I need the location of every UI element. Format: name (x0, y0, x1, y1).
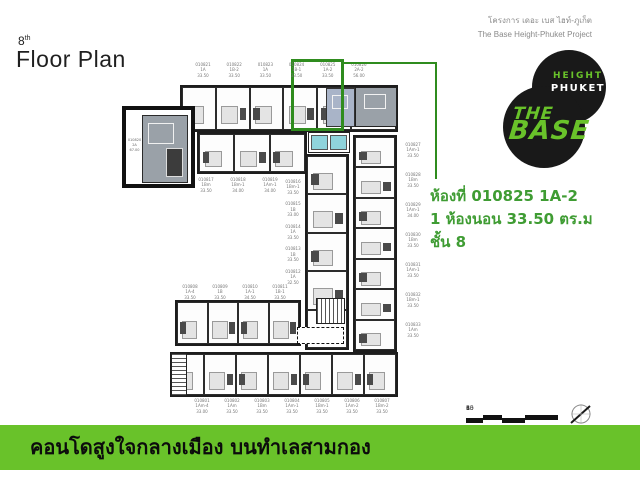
unit-cell (364, 354, 396, 395)
unit-label: 0108061Am-233.50 (338, 398, 366, 414)
unit-label: 0108181Bm-134.00 (224, 177, 252, 193)
unit-label: 0108231A33.50 (251, 62, 279, 78)
wing-bottom-upper-row (175, 300, 301, 346)
floor-number-suffix: th (25, 35, 31, 42)
unit-label: 0108121A32.50 (279, 269, 307, 285)
wing-right-column (353, 135, 397, 352)
unit-label: 0108281Bm33.50 (399, 172, 427, 188)
unit-label: 0108211A33.50 (189, 62, 217, 78)
unit-cell (355, 289, 395, 319)
unit-cell (216, 87, 250, 130)
stairwell (316, 298, 345, 324)
unit-label: 0108111B-133.50 (266, 284, 294, 300)
unit-cell (355, 228, 395, 258)
callout-line-vertical (435, 62, 437, 179)
logo-base-label: BASE (508, 118, 591, 144)
unit-cell (300, 354, 332, 395)
unit-callout-text: ห้องที่ 010825 1A-2 1 ห้องนอน 33.50 ตร.ม… (430, 185, 593, 254)
compass-icon (566, 400, 594, 428)
logo-height-label: HEIGHT (548, 71, 608, 81)
scale-bar-segment (502, 420, 525, 424)
elevator-core (308, 132, 350, 153)
labels-top-row: 0108211A33.50 0108221B-233.50 0108231A33… (189, 62, 373, 78)
unit-label: 0108241B-133.50 (283, 62, 311, 78)
project-name-english: The Base Height-Phuket Project (478, 30, 592, 39)
callout-floor-line: ชั้น 8 (430, 231, 593, 254)
dashed-service-room (297, 327, 344, 344)
project-name-thai: โครงการ เดอะ เบส ไฮท์-ภูเก็ต (488, 14, 592, 27)
unit-label: 0108161Bm-133.50 (279, 179, 307, 195)
elevator-cell (330, 135, 347, 150)
unit-cell (269, 302, 300, 344)
unit-label: 0108141A33.50 (279, 224, 307, 240)
logo-phuket-label: PHUKET (544, 83, 612, 94)
unit-cell (355, 198, 395, 228)
unit-cell (307, 233, 347, 271)
unit-label: 0108051Bm-133.50 (308, 398, 336, 414)
callout-bedroom-line: 1 ห้องนอน 33.50 ตร.ม (430, 208, 593, 231)
unit-cell (250, 87, 284, 130)
unit-label: 0108101A-134.50 (236, 284, 264, 300)
labels-second-row: 0108171Bm33.50 0108181Bm-134.00 0108191A… (192, 177, 284, 193)
unit-label: 0108311Am-133.50 (399, 262, 427, 278)
unit-label: 0108011Am-433.00 (188, 398, 216, 414)
elevator-cell (311, 135, 328, 150)
scale-bar-segment (483, 415, 502, 419)
unit-detail-box: 010820 2A 67.00 (122, 106, 195, 188)
unit-cell (332, 354, 364, 395)
scale-bar-segment (466, 420, 483, 424)
unit-cell (238, 302, 269, 344)
stairwell-left (171, 353, 187, 396)
unit-label: 0108081A-433.50 (176, 284, 204, 300)
unit-cell (268, 354, 300, 395)
unit-cell (199, 134, 234, 172)
floor-plan-page: 8th Floor Plan โครงการ เดอะ เบส ไฮท์-ภูเ… (0, 0, 640, 480)
unit-label: 0108151B33.00 (279, 201, 307, 217)
labels-middle-column: 0108161Bm-133.50 0108151B33.00 0108141A3… (279, 179, 305, 285)
scale-bar-segment (525, 415, 558, 419)
unit-cell (307, 194, 347, 232)
detail-unit-plan (142, 115, 188, 183)
unit-cell (234, 134, 269, 172)
detail-unit-label: 010820 2A 67.00 (127, 138, 142, 153)
scale-bar: 1361015 (466, 405, 558, 425)
wing-bottom-lower-row (170, 352, 398, 397)
unit-label: 0108262A-256.00 (345, 62, 373, 78)
wing-second-row (197, 132, 307, 174)
unit-cell (307, 156, 347, 194)
unit-label: 0108021Am33.50 (218, 398, 246, 414)
tagline-text: คอนโดสูงใจกลางเมือง บนทำเลสามกอง (30, 425, 371, 470)
unit-label: 0108271Am-133.50 (399, 142, 427, 158)
unit-label: 0108031Bm33.50 (248, 398, 276, 414)
unit-label: 0108041Am-133.50 (278, 398, 306, 414)
unit-label: 0108321Bm-133.50 (399, 292, 427, 308)
highlighted-unit-gray (355, 87, 397, 127)
unit-cell (236, 354, 268, 395)
labels-bottom-upper-row: 0108081A-433.50 0108091B33.50 0108101A-1… (176, 284, 294, 300)
unit-label: 0108071Bm-233.50 (368, 398, 396, 414)
unit-cell (204, 354, 236, 395)
unit-label: 0108291Am-134.00 (399, 202, 427, 218)
labels-bottom-lower-row: 0108011Am-433.00 0108021Am33.50 0108031B… (188, 398, 396, 414)
unit-cell (355, 320, 395, 350)
unit-label: 0108221B-233.50 (220, 62, 248, 78)
scale-tick-label: 15 (466, 405, 474, 412)
unit-label: 0108331Am33.50 (399, 322, 427, 338)
unit-label: 0108091B33.50 (206, 284, 234, 300)
footer-tagline-bar: คอนโดสูงใจกลางเมือง บนทำเลสามกอง (0, 425, 640, 470)
unit-cell (355, 137, 395, 167)
unit-label: 0108171Bm33.50 (192, 177, 220, 193)
callout-line-horizontal (343, 62, 437, 64)
unit-cell (177, 302, 208, 344)
unit-cell (355, 167, 395, 197)
page-title: Floor Plan (16, 46, 126, 73)
unit-label: 0108251A-233.50 (314, 62, 342, 78)
unit-label: 0108301Bm33.50 (399, 232, 427, 248)
unit-cell (270, 134, 305, 172)
labels-right-column: 0108271Am-133.50 0108281Bm33.50 0108291A… (399, 142, 427, 338)
unit-cell (355, 259, 395, 289)
unit-label: 0108131B33.50 (279, 246, 307, 262)
brand-logo: HEIGHT PHUKET THE BASE (498, 48, 614, 170)
callout-room-line: ห้องที่ 010825 1A-2 (430, 185, 593, 208)
unit-cell (208, 302, 239, 344)
